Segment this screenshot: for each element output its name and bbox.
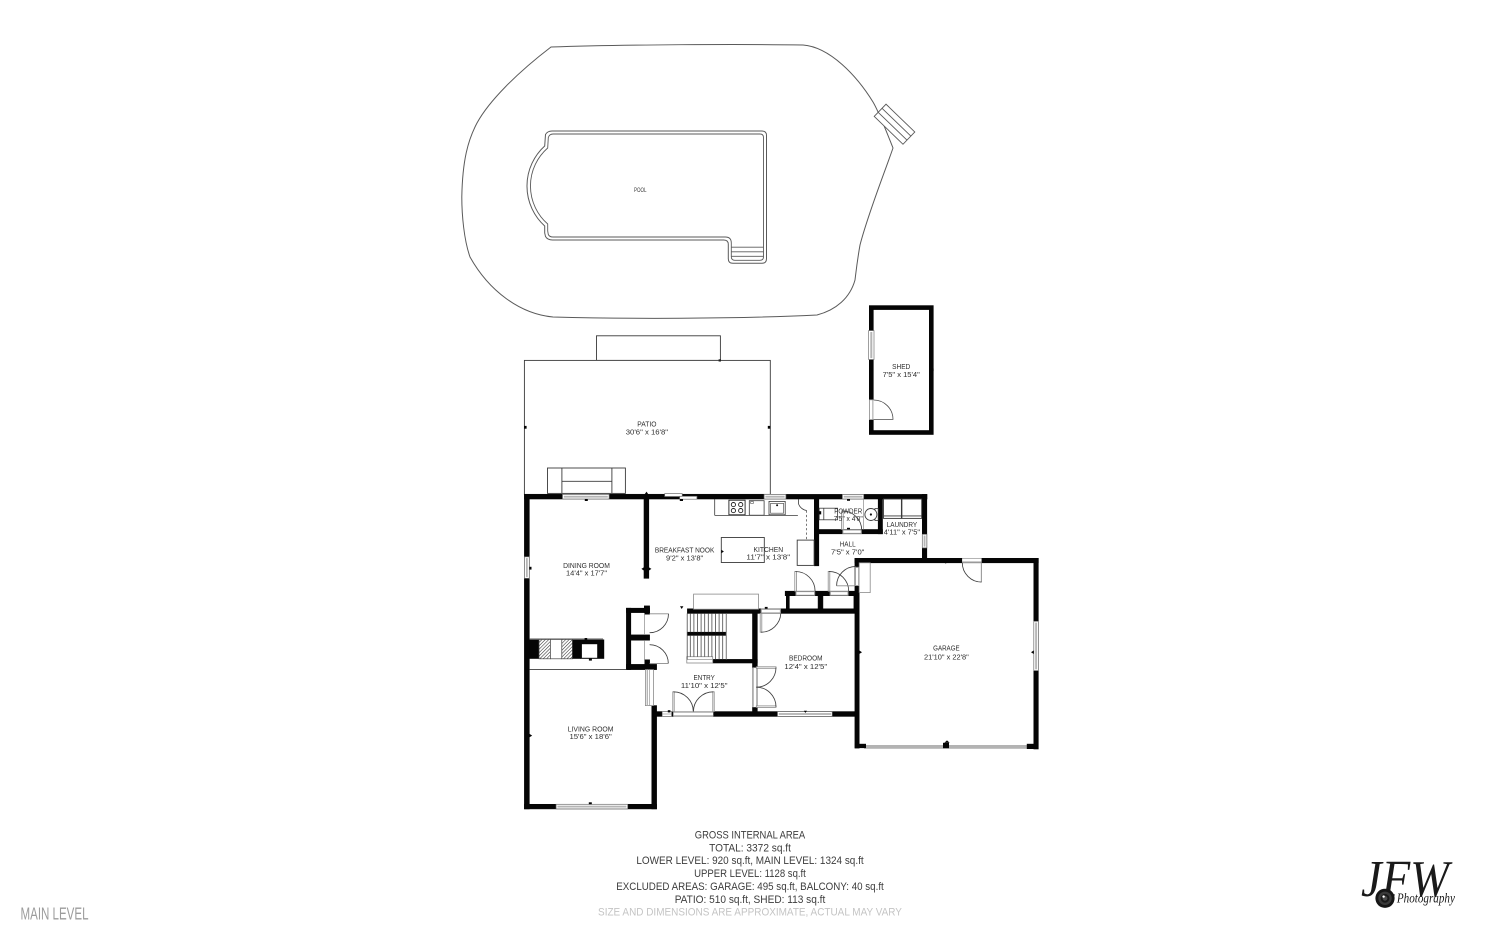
svg-text:30'6" x 16'8": 30'6" x 16'8" (626, 428, 669, 436)
svg-text:12'4" x 12'5": 12'4" x 12'5" (784, 663, 827, 671)
svg-text:MAIN LEVEL: MAIN LEVEL (21, 904, 89, 924)
svg-text:SIZE AND DIMENSIONS ARE APPROX: SIZE AND DIMENSIONS ARE APPROXIMATE, ACT… (598, 907, 902, 919)
svg-text:9'2" x 13'8": 9'2" x 13'8" (666, 554, 704, 562)
svg-text:7'5" x 4'0": 7'5" x 4'0" (834, 515, 863, 523)
svg-text:POOL: POOL (634, 187, 647, 194)
svg-text:ENTRY: ENTRY (694, 673, 715, 682)
svg-text:LOWER LEVEL: 920 sq.ft, MAIN L: LOWER LEVEL: 920 sq.ft, MAIN LEVEL: 1324… (636, 855, 864, 867)
svg-text:4'11" x 7'5": 4'11" x 7'5" (884, 529, 921, 537)
svg-text:EXCLUDED AREAS: GARAGE: 495 sq: EXCLUDED AREAS: GARAGE: 495 sq.ft, BALCO… (616, 881, 884, 893)
svg-text:15'6" x 18'6": 15'6" x 18'6" (570, 733, 613, 741)
svg-text:PATIO: 510 sq.ft, SHED: 113 sq: PATIO: 510 sq.ft, SHED: 113 sq.ft (675, 894, 826, 906)
svg-text:Photography: Photography (1396, 891, 1455, 906)
svg-text:SHED: SHED (892, 362, 911, 371)
svg-text:14'4" x 17'7": 14'4" x 17'7" (566, 570, 608, 578)
svg-text:11'10" x 12'5": 11'10" x 12'5" (681, 682, 728, 690)
svg-text:11'7" x 13'8": 11'7" x 13'8" (746, 554, 790, 562)
svg-text:GROSS INTERNAL AREA: GROSS INTERNAL AREA (695, 829, 806, 841)
svg-text:GARAGE: GARAGE (933, 644, 960, 653)
svg-text:7'5" x 7'0": 7'5" x 7'0" (831, 548, 865, 556)
svg-text:TOTAL: 3372 sq.ft: TOTAL: 3372 sq.ft (709, 842, 792, 854)
svg-text:BEDROOM: BEDROOM (789, 654, 823, 663)
svg-text:PATIO: PATIO (637, 419, 656, 428)
svg-text:21'10" x 22'8": 21'10" x 22'8" (924, 654, 969, 662)
svg-text:7'5" x 15'4": 7'5" x 15'4" (883, 371, 921, 379)
svg-text:UPPER LEVEL: 1128 sq.ft: UPPER LEVEL: 1128 sq.ft (694, 868, 806, 880)
